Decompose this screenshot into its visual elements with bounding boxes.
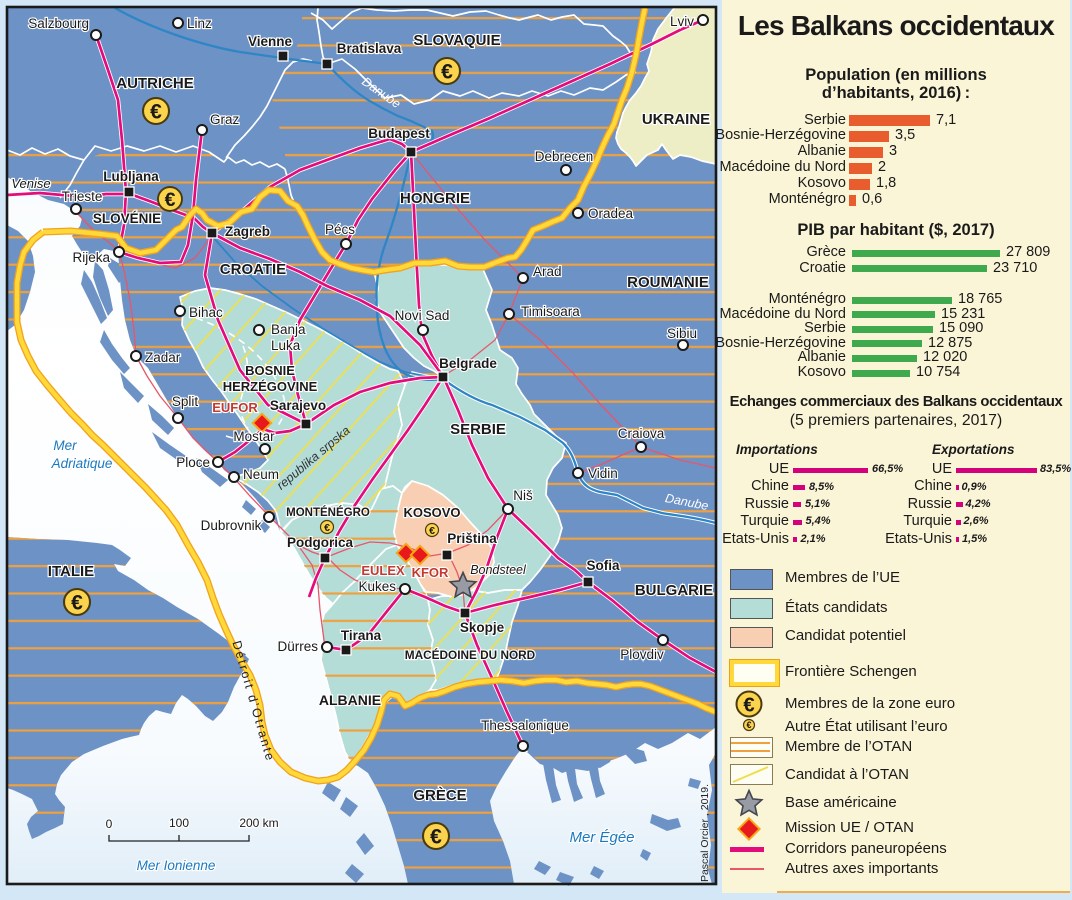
svg-text:Ploce: Ploce [176, 455, 210, 470]
svg-text:€: € [441, 61, 453, 84]
svg-text:0: 0 [106, 817, 113, 831]
svg-text:Adriatique: Adriatique [51, 456, 113, 471]
svg-text:Niš: Niš [513, 488, 533, 503]
svg-text:Vidin: Vidin [588, 466, 618, 481]
svg-text:€: € [150, 101, 162, 124]
svg-text:EUFOR: EUFOR [212, 400, 258, 415]
svg-text:Tirana: Tirana [341, 628, 382, 643]
svg-text:Mer Égée: Mer Égée [569, 829, 634, 846]
svg-text:Budapest: Budapest [368, 126, 430, 141]
svg-text:Kukes: Kukes [358, 579, 396, 594]
svg-text:Split: Split [172, 394, 199, 409]
svg-text:AUTRICHE: AUTRICHE [116, 75, 194, 92]
svg-text:Pascal Orcier , 2019.: Pascal Orcier , 2019. [699, 784, 711, 882]
svg-text:€: € [429, 525, 435, 537]
svg-text:Timisoara: Timisoara [521, 304, 580, 319]
svg-text:€: € [71, 592, 83, 615]
svg-text:Zadar: Zadar [145, 350, 181, 365]
svg-text:SERBIE: SERBIE [450, 421, 506, 438]
svg-text:€: € [430, 826, 442, 849]
svg-text:Thessalonique: Thessalonique [481, 718, 569, 733]
svg-text:Arad: Arad [533, 264, 562, 279]
svg-text:Banja: Banja [271, 322, 306, 337]
svg-text:SLOVÉNIE: SLOVÉNIE [93, 211, 161, 226]
svg-text:Priština: Priština [447, 531, 497, 546]
svg-text:GRÈCE: GRÈCE [413, 787, 466, 804]
svg-text:Bondsteel: Bondsteel [470, 563, 527, 577]
svg-text:Graz: Graz [210, 112, 240, 127]
svg-text:Oradea: Oradea [588, 206, 634, 221]
svg-text:ITALIE: ITALIE [48, 563, 94, 580]
svg-text:Vienne: Vienne [248, 34, 293, 49]
svg-text:KFOR: KFOR [412, 565, 449, 580]
svg-text:Bihac: Bihac [189, 305, 223, 320]
svg-text:ALBANIE: ALBANIE [319, 692, 381, 708]
svg-text:EULEX: EULEX [361, 563, 405, 578]
svg-text:Trieste: Trieste [62, 189, 103, 204]
svg-text:Sarajevo: Sarajevo [270, 398, 326, 413]
svg-text:€: € [324, 522, 330, 534]
svg-text:ROUMANIE: ROUMANIE [627, 274, 709, 291]
svg-text:Lubljana: Lubljana [103, 169, 159, 184]
svg-text:Bratislava: Bratislava [337, 41, 402, 56]
svg-text:Mer Ionienne: Mer Ionienne [137, 858, 216, 873]
svg-text:HONGRIE: HONGRIE [400, 190, 470, 207]
svg-text:MONTÉNÉGRO: MONTÉNÉGRO [286, 506, 370, 519]
svg-text:Venise: Venise [11, 176, 50, 191]
svg-text:Dürres: Dürres [277, 639, 318, 654]
svg-text:HERZÉGOVINE: HERZÉGOVINE [223, 379, 318, 394]
svg-text:Podgorica: Podgorica [287, 535, 354, 550]
svg-text:Neum: Neum [243, 467, 279, 482]
svg-text:€: € [747, 720, 752, 730]
svg-text:Craiova: Craiova [618, 426, 665, 441]
svg-text:Salzbourg: Salzbourg [28, 16, 89, 31]
svg-text:Debrecen: Debrecen [535, 149, 594, 164]
svg-text:Dubrovnik: Dubrovnik [201, 518, 262, 533]
svg-text:MACÉDOINE DU NORD: MACÉDOINE DU NORD [405, 648, 536, 662]
svg-text:Novi Sad: Novi Sad [395, 308, 450, 323]
svg-text:Rijeka: Rijeka [72, 250, 110, 265]
svg-text:Luka: Luka [271, 338, 301, 353]
svg-text:Sofia: Sofia [586, 558, 619, 573]
svg-text:SLOVAQUIE: SLOVAQUIE [413, 32, 500, 49]
svg-text:100: 100 [169, 816, 189, 830]
svg-text:CROATIE: CROATIE [220, 261, 286, 278]
svg-text:Pécs: Pécs [325, 222, 355, 237]
svg-text:Plovdiv: Plovdiv [620, 647, 664, 662]
svg-text:Mer: Mer [53, 438, 77, 453]
svg-text:Belgrade: Belgrade [439, 356, 497, 371]
svg-text:BOSNIE: BOSNIE [245, 363, 295, 378]
svg-text:Linz: Linz [187, 16, 212, 31]
svg-text:BULGARIE: BULGARIE [635, 582, 713, 599]
svg-text:200 km: 200 km [239, 816, 278, 830]
svg-text:€: € [743, 694, 754, 716]
svg-text:Lviv: Lviv [670, 14, 694, 29]
svg-text:UKRAINE: UKRAINE [642, 111, 710, 128]
svg-text:Zagreb: Zagreb [225, 224, 270, 239]
svg-text:KOSOVO: KOSOVO [403, 505, 460, 520]
svg-text:Mostar: Mostar [233, 429, 275, 444]
svg-text:Skopje: Skopje [460, 620, 505, 635]
svg-text:€: € [165, 189, 176, 211]
svg-text:Sibiu: Sibiu [667, 326, 697, 341]
